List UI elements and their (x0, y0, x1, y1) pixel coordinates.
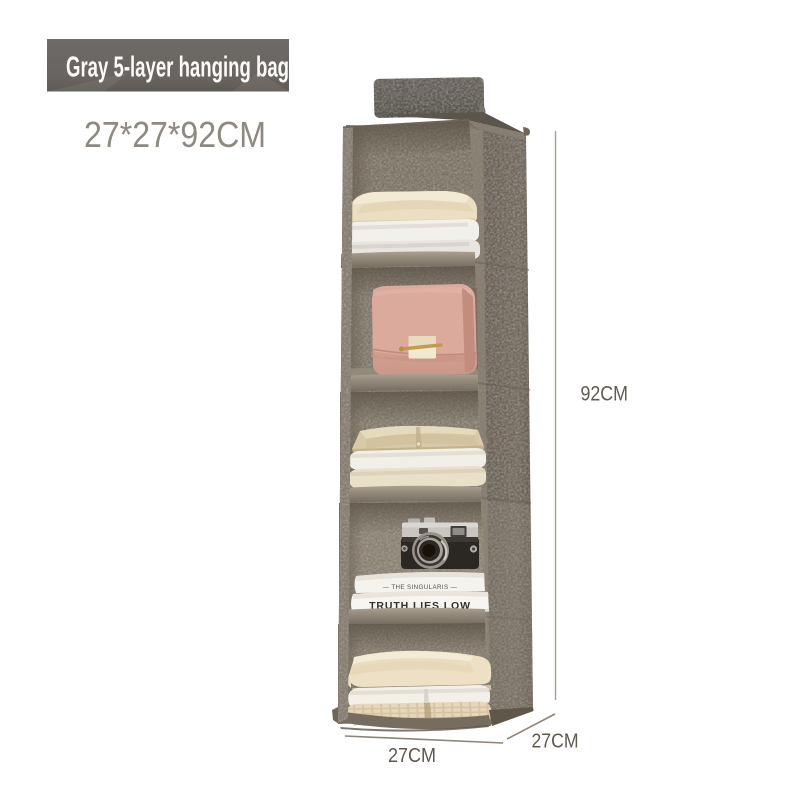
svg-text:92CM: 92CM (581, 382, 629, 406)
svg-text:— THE SINGULARIS —: — THE SINGULARIS — (383, 584, 458, 591)
svg-text:Gray 5-layer hanging bag: Gray 5-layer hanging bag (66, 52, 289, 84)
svg-text:27*27*92CM: 27*27*92CM (84, 114, 266, 155)
svg-text:27CM: 27CM (388, 744, 436, 767)
svg-text:27CM: 27CM (532, 730, 579, 753)
